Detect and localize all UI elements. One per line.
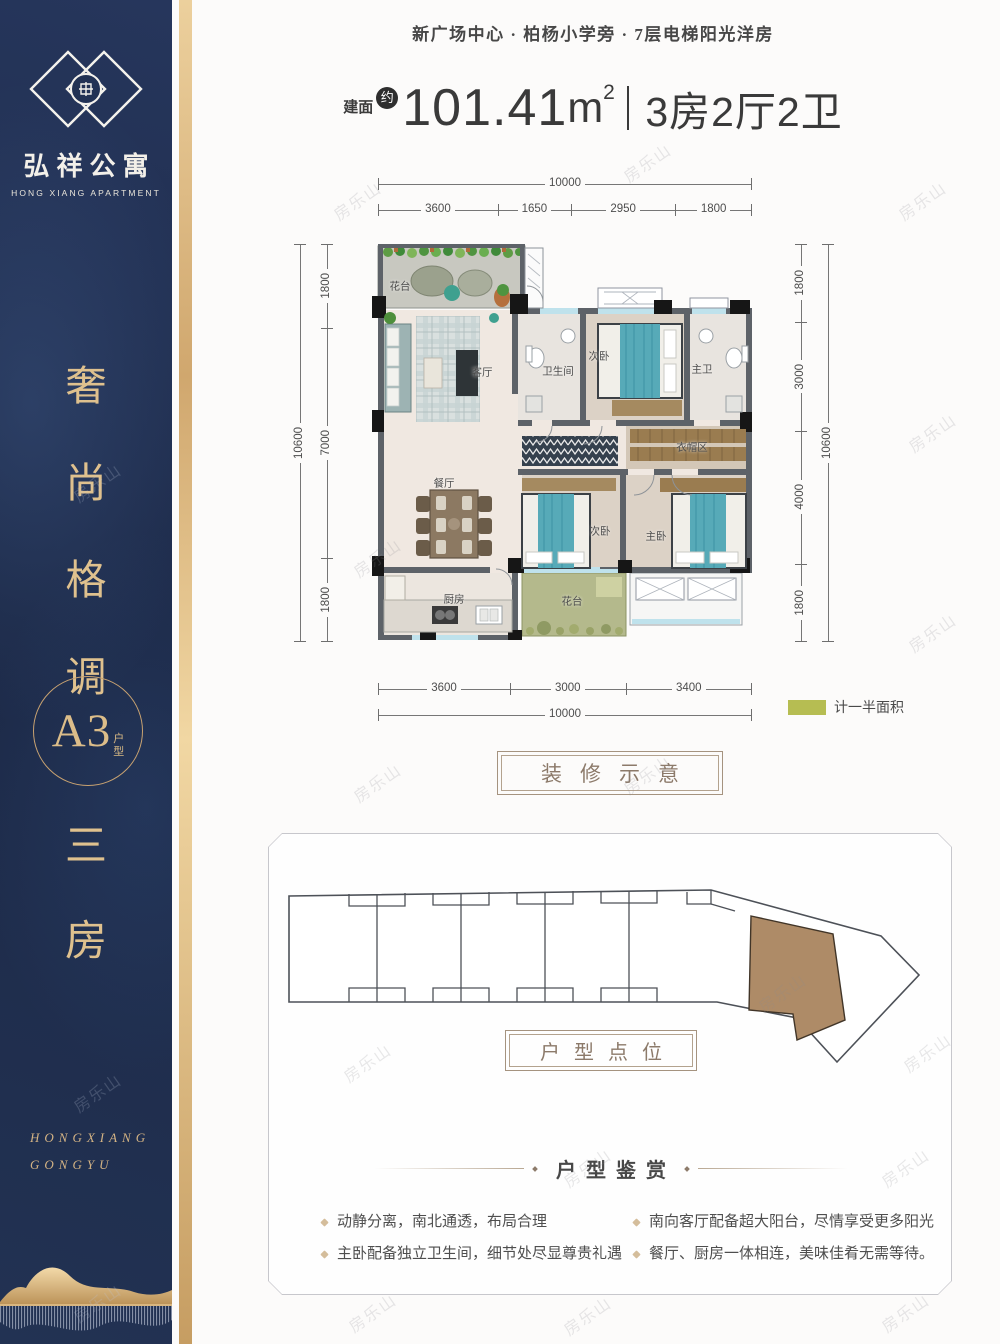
dim-top-segments: 3600 1650 2950 1800	[378, 203, 752, 217]
room-label-terrace-top: 花台	[390, 279, 411, 294]
dim-left-total: 10600	[293, 244, 307, 642]
bullet-item: 主卧配备独立卫生间，细节处尽显尊贵礼遇	[321, 1238, 622, 1270]
room-label-cloak: 衣帽区	[676, 440, 708, 455]
area-value: 101.41	[402, 78, 567, 138]
dim-right-total: 10600	[821, 244, 835, 642]
header-tagline: 新广场中心 · 柏杨小学旁 · 7层电梯阳光洋房	[186, 20, 1000, 45]
logo-diamond-icon	[21, 42, 151, 137]
terrace-top-graphic	[378, 246, 525, 308]
watermark-text: 房乐山	[558, 1290, 616, 1341]
room-label-master-bath: 主卫	[692, 362, 713, 377]
dim-bottom-total: 10000	[378, 708, 752, 722]
review-bullets-left: 动静分离，南北通透，布局合理 主卧配备独立卫生间，细节处尽显尊贵礼遇	[321, 1206, 622, 1271]
decor-note-box: 装修示意	[497, 751, 723, 795]
dim-bottom-segments: 3600 3000 3400	[378, 682, 752, 696]
slogan-char: 奢	[66, 352, 107, 412]
sidebar-footer-text: HONGXIANG GONGYU	[30, 1124, 150, 1179]
mountain-decoration	[0, 1232, 172, 1344]
title-divider	[627, 86, 630, 130]
bullet-item: 动静分离，南北通透，布局合理	[321, 1206, 622, 1238]
room-label-bedroom2-bottom: 次卧	[590, 524, 611, 539]
watermark-text: 房乐山	[348, 757, 406, 808]
unit-type-suffix: 户 型	[113, 733, 124, 758]
area-unit: m	[567, 84, 603, 133]
highlighted-unit	[749, 916, 845, 1040]
sidebar: 弘祥公寓 HONG XIANG APARTMENT 奢 尚 格 调 A3 户 型…	[0, 0, 172, 1344]
brand-logo: 弘祥公寓 HONG XIANG APARTMENT	[0, 42, 172, 198]
review-heading: 户型鉴赏	[269, 1154, 953, 1183]
watermark-text: 房乐山	[903, 407, 961, 458]
brand-name-cn: 弘祥公寓	[0, 146, 172, 183]
area-title: 建面 约 101.41 m 2 3房2厅2卫	[186, 78, 1000, 138]
bullet-item: 餐厅、厨房一体相连，美味佳肴无需等待。	[633, 1238, 934, 1270]
room-label-master-bedroom: 主卧	[646, 529, 667, 544]
poster-page: 弘祥公寓 HONG XIANG APARTMENT 奢 尚 格 调 A3 户 型…	[0, 0, 1000, 1344]
area-unit-power: 2	[603, 81, 615, 105]
room-label-dining: 餐厅	[434, 476, 455, 491]
rooms-count-vertical: 三 房	[0, 812, 172, 968]
hall-rug	[522, 436, 618, 466]
rooms-summary: 3房2厅2卫	[645, 78, 842, 138]
room-label-terrace-bottom: 花台	[562, 594, 583, 609]
dim-top-total: 10000	[378, 177, 752, 191]
legend-label: 计一半面积	[834, 697, 904, 717]
gold-border-strip	[179, 0, 192, 1344]
legend-swatch	[788, 700, 826, 715]
room-label-living: 客厅	[472, 365, 493, 380]
room-label-bedroom2-top: 次卧	[589, 349, 610, 364]
half-area-legend: 计一半面积	[788, 697, 904, 717]
brand-name-en: HONG XIANG APARTMENT	[0, 188, 172, 198]
dim-right-segments: 1800 3000 4000 1800	[794, 244, 808, 642]
slogan-char: 尚	[66, 449, 107, 509]
dim-left-segments: 1800 7000 1800	[320, 244, 334, 642]
bullet-marker-icon	[320, 1250, 328, 1258]
slogan-char: 格	[66, 546, 107, 606]
watermark-text: 房乐山	[893, 175, 951, 226]
review-bullets-right: 南向客厅配备超大阳台，尽情享受更多阳光 餐厅、厨房一体相连，美味佳肴无需等待。	[633, 1206, 934, 1271]
bedroom-runner	[524, 478, 616, 491]
area-label: 建面	[343, 100, 373, 117]
bullet-marker-icon	[320, 1218, 328, 1226]
bullet-marker-icon	[632, 1218, 640, 1226]
unit-type-code: A3	[52, 704, 111, 758]
approx-circle: 约	[376, 87, 398, 109]
master-balcony-graphic	[630, 573, 742, 625]
bed-master	[660, 478, 746, 568]
room-label-bath: 卫生间	[542, 364, 574, 379]
vertical-slogan: 奢 尚 格 调	[0, 352, 172, 703]
watermark-text: 房乐山	[903, 607, 961, 658]
unit-location-box: 户型点位	[505, 1030, 697, 1071]
unit-type-badge: A3 户 型	[33, 676, 143, 786]
bullet-marker-icon	[632, 1250, 640, 1258]
dining-furniture	[416, 490, 492, 558]
bullet-item: 南向客厅配备超大阳台，尽情享受更多阳光	[633, 1206, 934, 1238]
room-label-kitchen: 厨房	[444, 592, 465, 607]
